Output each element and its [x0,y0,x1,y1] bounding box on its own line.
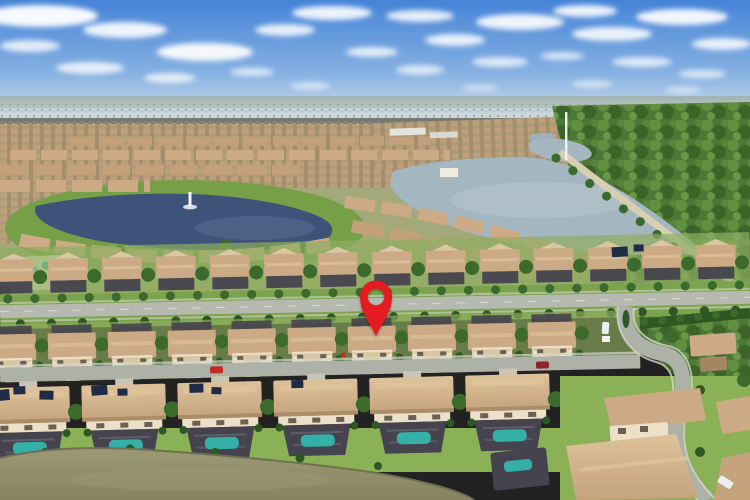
roof [716,396,750,434]
fountain-icon [189,192,192,206]
lake-shine [195,216,315,240]
palm-icon [695,447,705,457]
warehouse-roof [390,128,426,136]
warehouse-roof [430,131,458,138]
maroon-car [536,361,549,368]
aerial-photo-canvas [0,0,750,500]
red-car [210,366,223,373]
aerial-photo [0,0,750,500]
red-mailbox [341,353,345,358]
clubhouse-roof [689,332,736,356]
white-van [602,322,610,334]
building-roof [700,356,728,372]
clubhouse-roof [440,168,458,177]
pond-reflection [70,469,330,491]
gate-booth [602,336,610,342]
large-roof [566,434,698,500]
tree-icon [665,329,679,343]
window [618,428,626,434]
utility-tower [565,112,567,160]
window [640,426,648,432]
entrance-median [623,310,630,328]
fountain-splash [183,205,197,210]
